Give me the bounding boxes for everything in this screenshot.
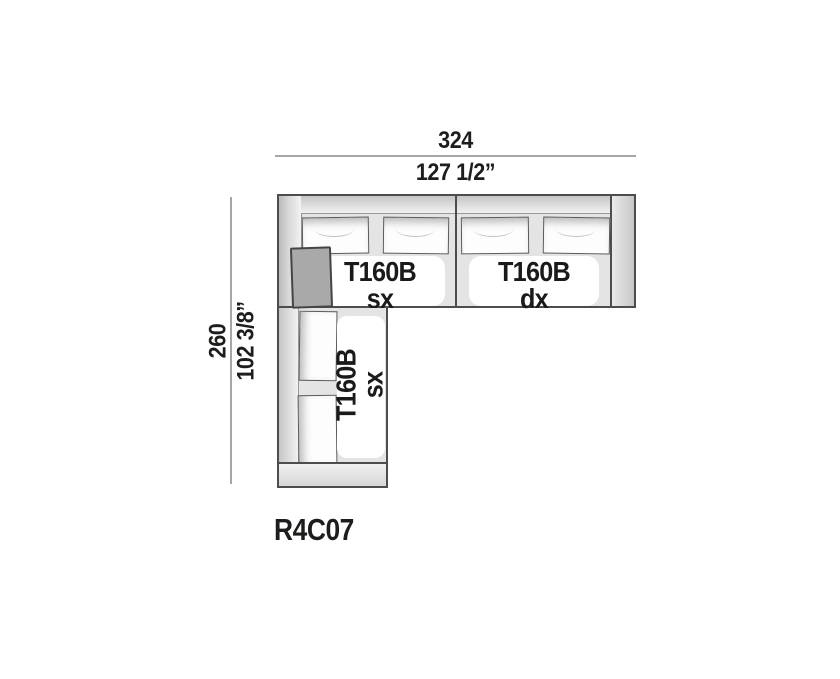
module-label-top-left: T160B sx — [322, 259, 439, 312]
module-label-side: T160B sx — [333, 318, 386, 453]
module-label-top-right: T160B dx — [476, 259, 593, 312]
sofa-configuration-diagram: 324 127 1/2” 260 102 3/8” T160B sx T160B… — [0, 0, 840, 679]
dimension-width-inches: 127 1/2” — [293, 159, 618, 187]
module-code-text: T160B — [476, 259, 593, 286]
dimension-width-cm: 324 — [293, 127, 618, 155]
throw-pillow — [290, 246, 333, 308]
module-code-text: T160B — [333, 318, 360, 453]
back-cushion — [543, 217, 611, 255]
armrest-bottom — [279, 462, 386, 486]
module-side-text: dx — [476, 286, 593, 313]
backrest-side — [279, 308, 299, 463]
back-cushion — [461, 217, 529, 255]
sofa-side-section: T160B sx — [277, 308, 388, 488]
dimension-line-horizontal — [275, 155, 636, 157]
armrest-right — [610, 196, 634, 306]
dimension-depth-labels: 260 102 3/8” — [205, 197, 262, 485]
back-cushion — [383, 217, 449, 255]
dimension-depth-cm: 260 — [205, 197, 233, 485]
dimension-depth-inches: 102 3/8” — [233, 197, 261, 485]
module-code-text: T160B — [322, 259, 439, 286]
module-side-text: sx — [360, 318, 387, 453]
module-seam — [455, 196, 457, 306]
model-code: R4C07 — [274, 512, 354, 548]
